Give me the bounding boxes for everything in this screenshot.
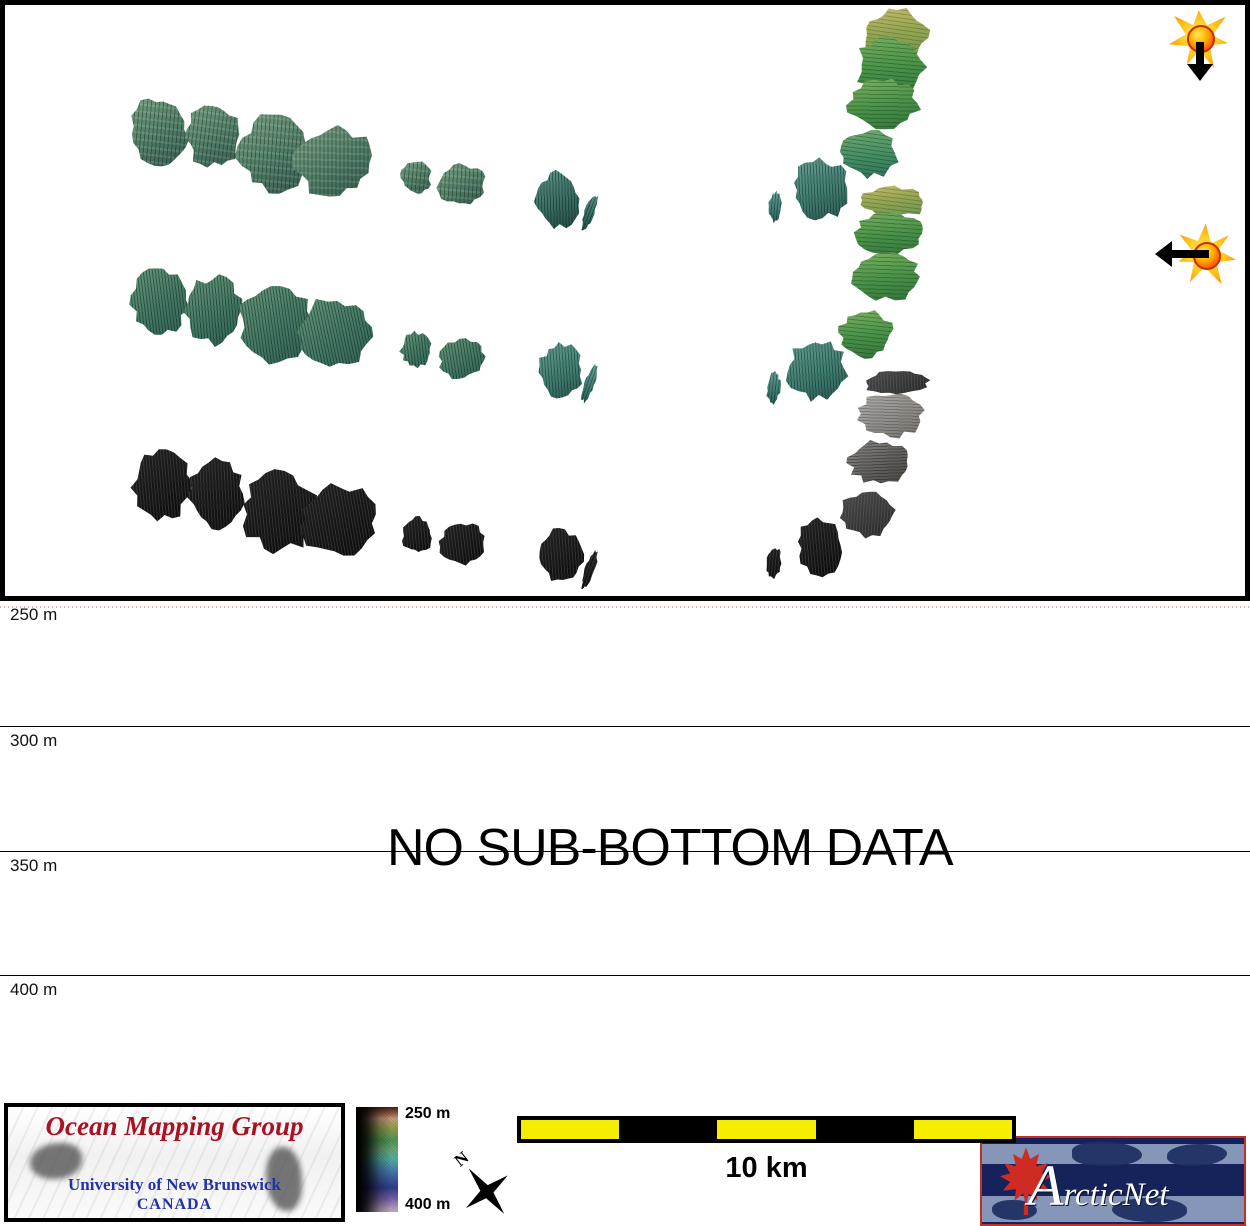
sonar-swath xyxy=(184,453,250,536)
scale-bar-label: 10 km xyxy=(517,1152,1016,1185)
arcticnet-logo: ArcticNet xyxy=(980,1136,1246,1226)
depth-tick-250m: 250 m xyxy=(10,605,57,625)
sonar-swath xyxy=(180,98,246,173)
bathymetry-map-panel xyxy=(0,0,1250,601)
arcticnet-rest: rcticNet xyxy=(1063,1177,1168,1213)
sonar-swath xyxy=(398,514,435,557)
page: 250 m 300 m 350 m 400 m NO SUB-BOTTOM DA… xyxy=(0,0,1250,1226)
omg-logo-title: Ocean Mapping Group xyxy=(8,1111,341,1142)
depth-line-300m xyxy=(0,726,1250,727)
down-arrowhead-icon xyxy=(1187,64,1213,81)
depth-tick-350m: 350 m xyxy=(10,856,57,876)
arcticnet-initial: A xyxy=(1028,1153,1063,1218)
sonar-swath xyxy=(127,442,198,527)
sonar-swath xyxy=(767,189,784,224)
no-data-label: NO SUB-BOTTOM DATA xyxy=(387,818,887,878)
north-arrow-icon: N xyxy=(446,1144,524,1222)
left-arrow-icon xyxy=(1169,250,1209,258)
depth-line-400m xyxy=(0,975,1250,976)
ship-silhouette-icon xyxy=(30,1143,82,1179)
down-arrow-icon xyxy=(1196,42,1204,64)
sonar-swath xyxy=(534,523,588,588)
flare-marker-left-icon xyxy=(1153,222,1250,286)
sonar-swath xyxy=(844,437,916,487)
sonar-swath xyxy=(531,166,585,233)
sonar-swath xyxy=(788,153,853,224)
sonar-swath xyxy=(124,259,195,344)
compass-north-label: N xyxy=(451,1147,473,1170)
sonar-swath xyxy=(433,159,490,211)
sonar-swath xyxy=(835,306,898,361)
depth-color-legend xyxy=(356,1107,398,1212)
sonar-swath xyxy=(577,189,602,234)
sonar-swath xyxy=(792,513,847,581)
sonar-swath xyxy=(854,389,928,441)
sonar-swath xyxy=(764,369,783,406)
depth-tick-300m: 300 m xyxy=(10,731,57,751)
flare-marker-down-icon xyxy=(1168,6,1232,90)
scale-segment xyxy=(521,1120,619,1139)
map-scale-bar xyxy=(517,1116,1016,1143)
scale-segment xyxy=(914,1120,1012,1139)
omg-logo: Ocean Mapping Group University of New Br… xyxy=(4,1103,345,1222)
sonar-swath xyxy=(180,270,246,349)
scale-segment xyxy=(717,1120,815,1139)
sonar-swath xyxy=(852,207,929,258)
sonar-swath xyxy=(834,486,899,542)
sonar-swath xyxy=(764,544,784,581)
sonar-swath xyxy=(845,249,926,304)
arcticnet-wordmark: ArcticNet xyxy=(1028,1152,1169,1219)
seafloor-trace-line xyxy=(0,606,1250,608)
sonar-swath xyxy=(534,338,588,403)
sonar-swath xyxy=(859,366,932,398)
omg-logo-country: CANADA xyxy=(8,1196,341,1214)
sonar-swath xyxy=(434,517,491,571)
scale-segment xyxy=(816,1120,914,1139)
depth-tick-400m: 400 m xyxy=(10,980,57,1000)
scale-segment xyxy=(619,1120,717,1139)
omg-logo-institution: University of New Brunswick xyxy=(8,1175,341,1195)
legend-top-label: 250 m xyxy=(405,1105,475,1123)
sonar-swath xyxy=(433,333,490,385)
sonar-swath xyxy=(397,157,434,198)
left-arrowhead-icon xyxy=(1155,241,1172,267)
sonar-swath xyxy=(397,329,434,372)
sonar-swath xyxy=(124,89,195,174)
